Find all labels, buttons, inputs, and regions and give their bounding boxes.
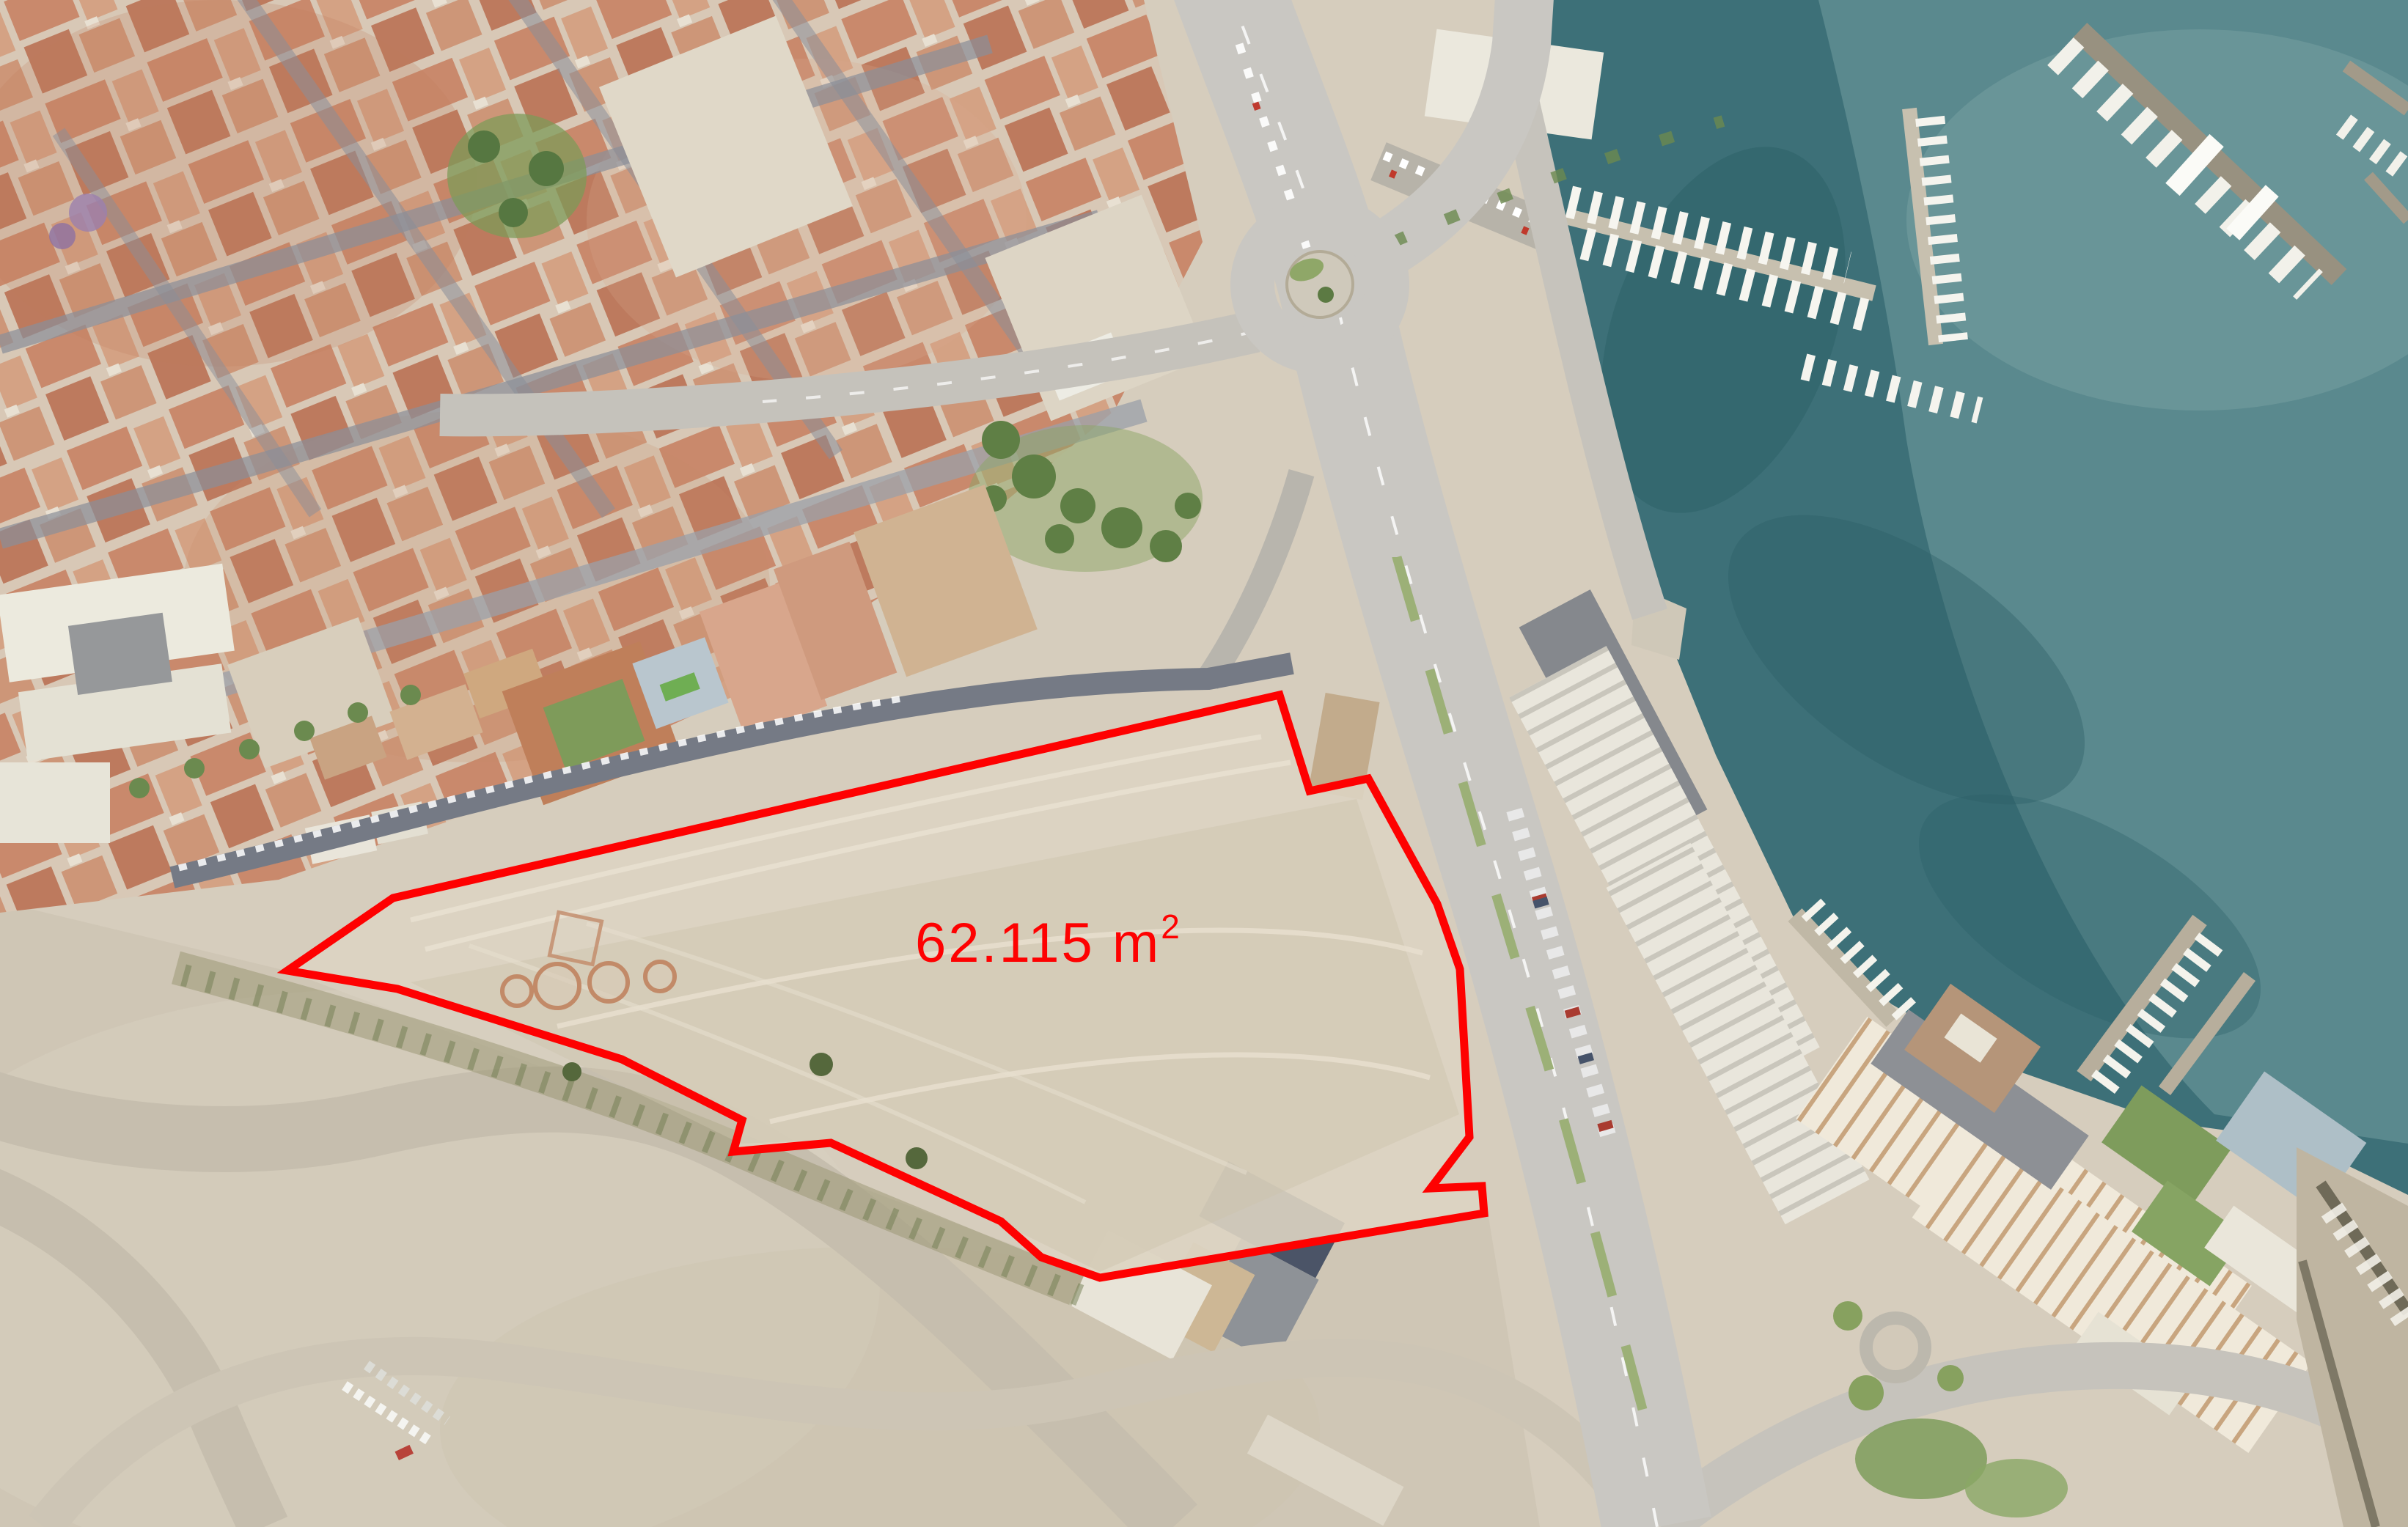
tree	[1045, 524, 1074, 553]
bush	[810, 1053, 833, 1076]
building-roof	[0, 762, 110, 843]
warehouse-roof-gray	[68, 613, 172, 695]
area-label: 62.115 m2	[915, 908, 1182, 974]
aerial-map: 62.115 m2	[0, 0, 2408, 1527]
tree	[1012, 455, 1056, 498]
aerial-map-canvas: 62.115 m2	[0, 0, 2408, 1527]
ground-circle-mark	[502, 976, 532, 1006]
green-area	[1965, 1459, 2068, 1517]
bush	[562, 1062, 581, 1081]
tree	[1060, 488, 1095, 523]
tree	[1101, 507, 1142, 548]
ground-circle-mark	[645, 962, 675, 991]
bush	[906, 1147, 928, 1169]
green-island	[1833, 1301, 1862, 1331]
green-island	[1849, 1375, 1884, 1410]
roundabout-tree	[1318, 287, 1334, 303]
ground-circle-mark	[535, 964, 579, 1008]
tree	[1150, 530, 1182, 562]
tree	[499, 198, 528, 227]
tree	[982, 421, 1020, 459]
tree	[1175, 493, 1201, 519]
flowering-tree	[69, 194, 107, 232]
ground-circle-mark	[590, 963, 628, 1001]
tree	[468, 130, 500, 163]
small-roundabout	[1866, 1318, 1925, 1377]
green-island	[1937, 1365, 1964, 1391]
flowering-tree	[49, 223, 76, 249]
tree	[529, 151, 564, 186]
